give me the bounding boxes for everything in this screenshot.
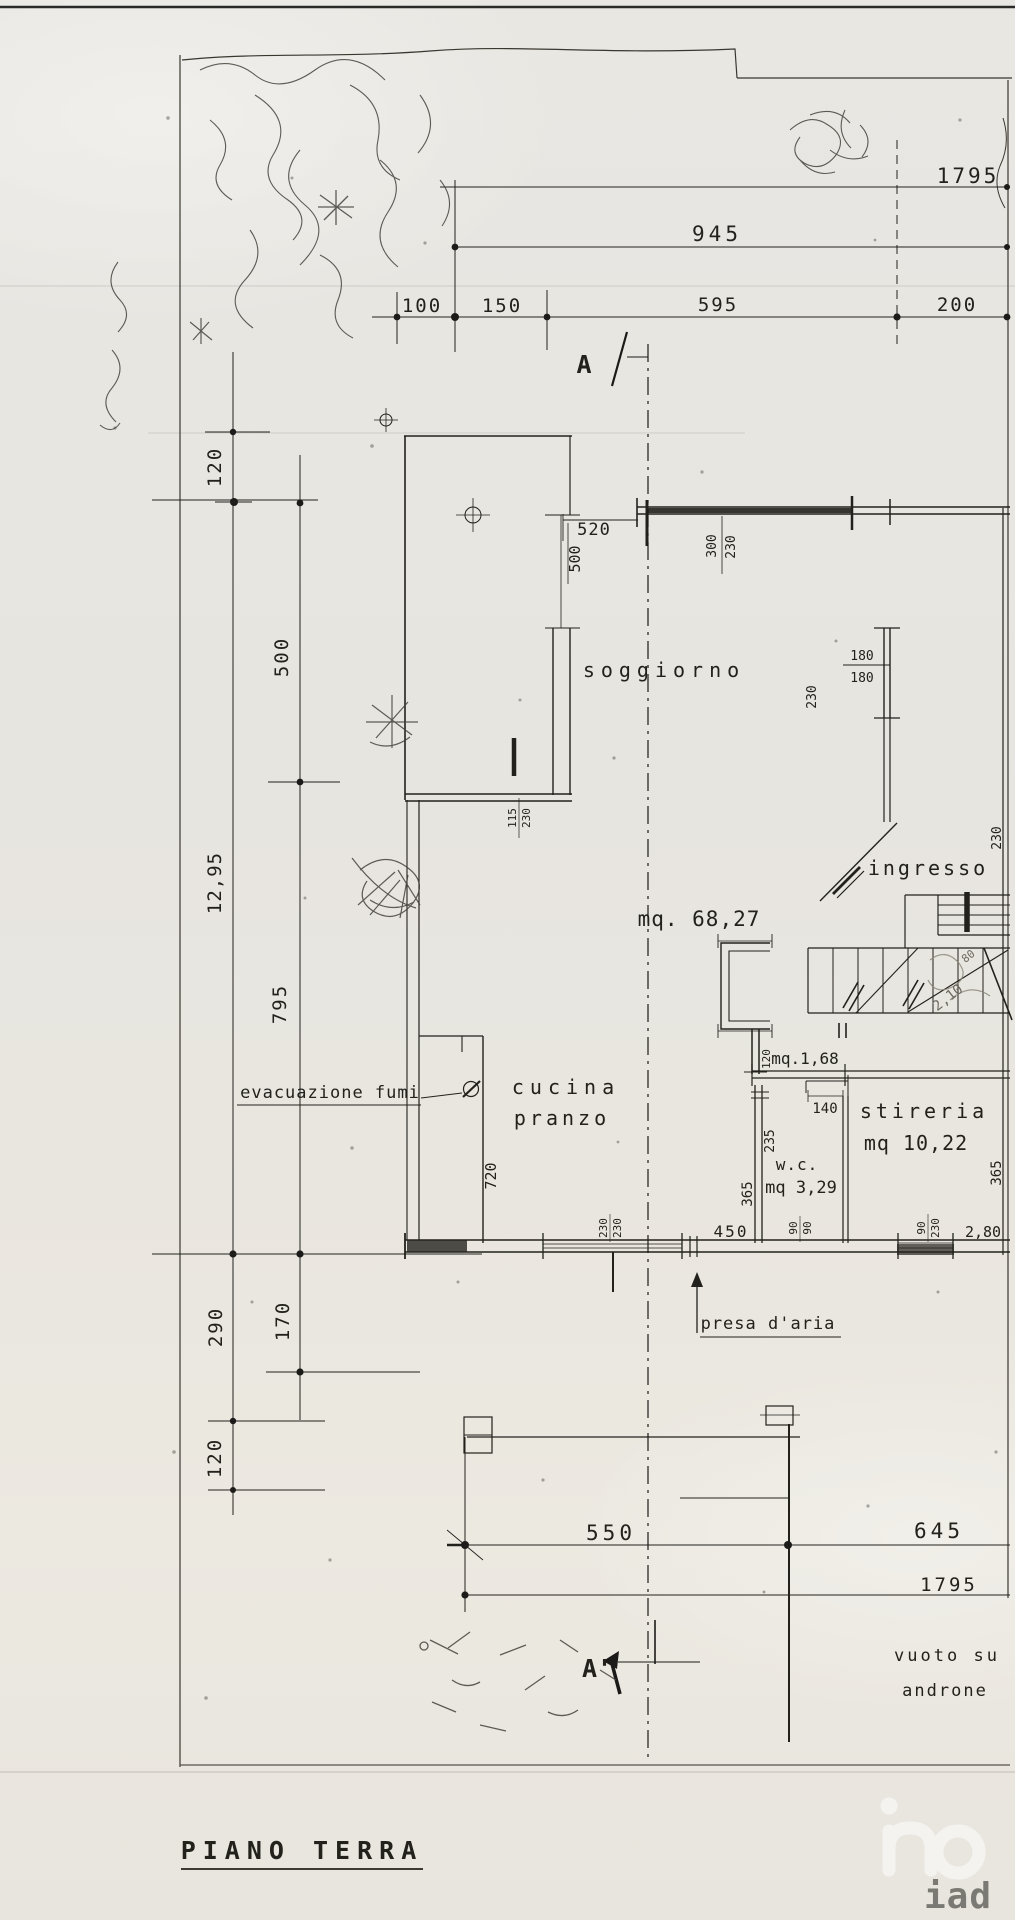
dim-180-b: 180 [850,671,873,686]
dim-top-100: 100 [402,295,442,317]
dim-bottom-645: 645 [914,1519,964,1543]
pencil-note-80: 80 [959,947,977,965]
dim-top-total: 1795 [937,164,1000,188]
scanned-floor-plan-page: 1795 945 100 150 595 200 120 500 12,95 7… [0,0,1015,1920]
dim-90-a: 90 [787,1221,800,1234]
room-area-shaft: mq.1,68 [771,1049,838,1068]
section-marker-a-flag [612,332,627,386]
dim-280: 2,80 [965,1223,1001,1241]
room-label-soggiorno: soggiorno [583,658,745,682]
vent-symbols [374,408,490,1098]
page-title: PIANO TERRA [181,1836,424,1865]
note-vuoto-su: vuoto su [894,1646,1000,1666]
dim-180-a: 180 [850,649,873,664]
room-label-ingresso: ingresso [868,856,988,880]
dim-365-stireria: 365 [989,1160,1005,1185]
dim-90-b: 90 [801,1221,814,1234]
dim-450: 450 [714,1222,749,1241]
dim-top-595: 595 [698,294,738,316]
note-presa-daria: presa d'aria [701,1314,836,1334]
dim-115: 115 [506,808,519,828]
dim-230-win-a2: 230 [611,1218,624,1238]
labels: 1795 945 100 150 595 200 120 500 12,95 7… [181,164,1005,1865]
annotation-marks [181,1105,841,1869]
staircase [808,892,1012,1038]
dim-365-wc: 365 [740,1181,756,1206]
room-area-main: mq. 68,27 [638,907,761,931]
dim-left-total: 12,95 [204,852,226,914]
plant-asterisk-1 [318,190,354,225]
room-label-stireria: stireria [860,1099,988,1123]
room-label-wc: w.c. [776,1155,819,1174]
margin-squiggles [100,262,127,430]
dim-230-win-b: 230 [929,1218,942,1238]
site-boundary-lines [180,49,1012,1767]
dim-230-top: 230 [724,535,739,558]
section-marker-a-prime: A' [582,1654,612,1683]
dim-top-150: 150 [482,295,522,317]
dim-left-290: 290 [205,1307,227,1347]
room-area-stireria: mq 10,22 [864,1131,968,1155]
dim-bottom-550: 550 [586,1521,636,1545]
dim-140: 140 [812,1101,837,1117]
plant-star-1 [366,695,418,748]
section-marker-a: A [576,350,591,379]
dim-230-wall: 230 [805,685,820,708]
dim-500v: 500 [566,545,584,572]
pencil-note-210: 2,10 [930,981,966,1014]
dim-bottom-total: 1795 [920,1574,978,1596]
room-label-pranzo: pranzo [514,1106,610,1130]
dim-top-945: 945 [692,222,742,246]
dim-300: 300 [705,534,720,557]
dim-230-entry: 230 [990,826,1005,849]
note-evacuazione-fumi: evacuazione fumi [240,1083,420,1103]
floor-plan-canvas: 1795 945 100 150 595 200 120 500 12,95 7… [0,0,1015,1920]
dim-left-120-lower: 120 [204,1438,226,1478]
dim-left-500: 500 [271,637,293,677]
leaf-cluster [790,110,868,174]
room-label-cucina: cucina [512,1075,620,1099]
dim-top-200: 200 [937,294,977,316]
iad-logo-icon [881,1798,980,1874]
dim-left-120-upper: 120 [204,447,226,487]
dimension-dots [229,184,1010,1599]
dim-left-170: 170 [272,1301,294,1341]
plant-asterisk-2 [190,318,212,344]
dim-520: 520 [577,520,611,540]
dim-90-c: 90 [915,1221,928,1234]
dim-235: 235 [763,1129,778,1152]
plant-star-2 [352,858,420,918]
dim-720: 720 [482,1162,500,1189]
dimension-lines [152,140,1010,1742]
room-area-wc: mq 3,29 [765,1178,837,1198]
dim-left-795: 795 [269,984,291,1024]
watermark: iad [881,1798,993,1918]
scan-artifacts [0,7,1015,1772]
note-androne: androne [902,1681,988,1701]
iad-logo-text: iad [924,1876,992,1917]
building-walls [404,436,1010,1453]
dim-230-win-a1: 230 [597,1218,610,1238]
dim-230-door: 230 [520,808,533,828]
dimension-ticks [215,502,483,1560]
